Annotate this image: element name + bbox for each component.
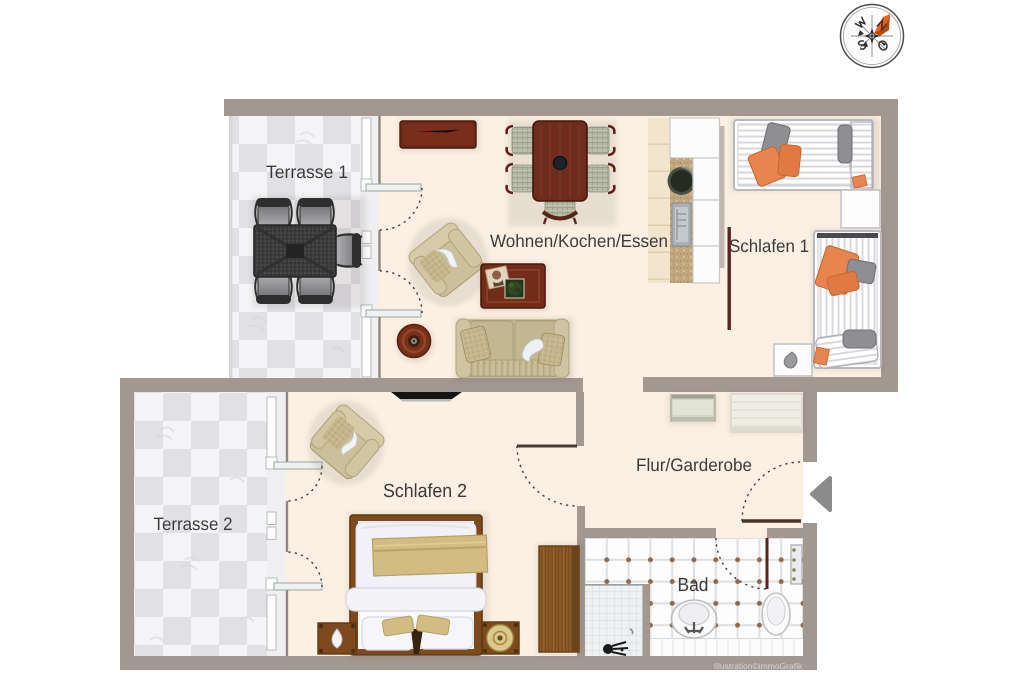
svg-text:Illustration©immoGrafik: Illustration©immoGrafik — [714, 661, 803, 671]
svg-text:Schlafen 2: Schlafen 2 — [383, 481, 467, 502]
svg-text:Flur/Garderobe: Flur/Garderobe — [636, 455, 752, 475]
svg-text:Bad: Bad — [677, 575, 708, 596]
svg-text:Terrasse 2: Terrasse 2 — [153, 514, 232, 534]
svg-text:Schlafen 1: Schlafen 1 — [729, 236, 809, 256]
svg-text:Terrasse 1: Terrasse 1 — [266, 162, 348, 182]
svg-text:Wohnen/Kochen/Essen: Wohnen/Kochen/Essen — [490, 231, 668, 251]
